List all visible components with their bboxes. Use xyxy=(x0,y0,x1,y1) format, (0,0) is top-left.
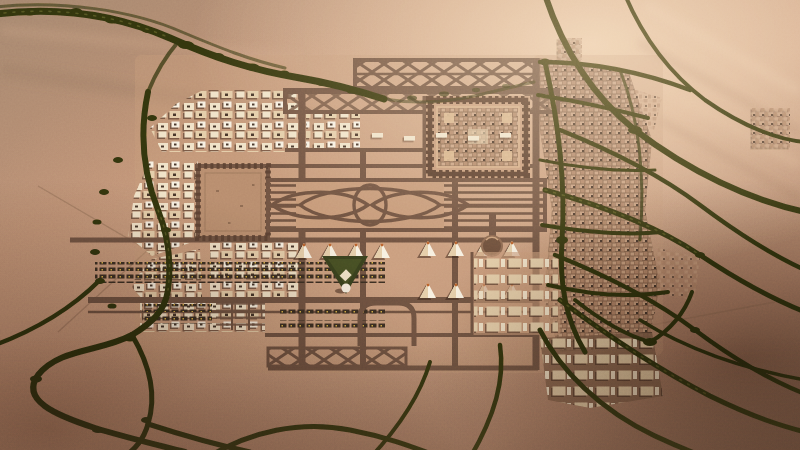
photographic-grading xyxy=(0,0,800,450)
film-grain xyxy=(0,0,800,450)
scene-canvas xyxy=(0,0,800,450)
aerial-scene xyxy=(0,0,800,450)
